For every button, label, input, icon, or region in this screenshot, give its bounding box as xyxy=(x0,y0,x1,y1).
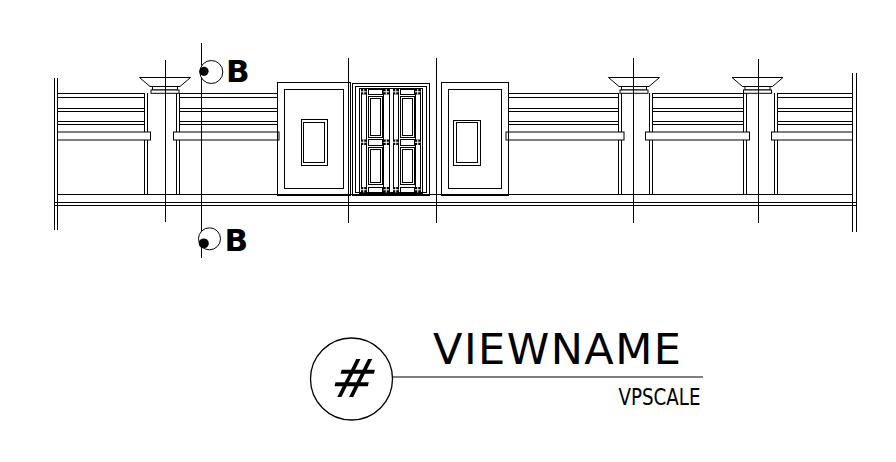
boundary-wall-elevation: B B xyxy=(54,43,857,258)
left-end-post xyxy=(54,78,58,230)
view-title-block: # VIEWNAME VPSCALE xyxy=(311,324,704,420)
section-label: B xyxy=(226,53,250,89)
section-label: B xyxy=(225,222,249,258)
gate-pier-right xyxy=(441,82,508,195)
ground-lines xyxy=(54,194,857,205)
section-marker-top: B xyxy=(199,53,249,89)
marker-dot-icon xyxy=(199,238,209,248)
gate-pier-left xyxy=(277,82,350,195)
cad-viewport: B B # VIEWNAME VPSCALE xyxy=(0,0,896,462)
grid-lines xyxy=(165,43,758,258)
elevation-drawing: B B # VIEWNAME VPSCALE xyxy=(0,0,896,462)
pier-window xyxy=(454,120,481,165)
main-gate xyxy=(353,84,430,196)
pier-window xyxy=(301,120,327,166)
detail-symbol: # xyxy=(328,348,376,409)
marker-dot-icon xyxy=(199,67,208,76)
view-name: VIEWNAME xyxy=(433,324,681,374)
section-marker-bottom: B xyxy=(199,222,249,258)
right-end-post xyxy=(853,73,857,232)
view-scale: VPSCALE xyxy=(619,384,701,410)
ledge-band xyxy=(58,132,853,140)
planter-icon xyxy=(609,78,660,94)
